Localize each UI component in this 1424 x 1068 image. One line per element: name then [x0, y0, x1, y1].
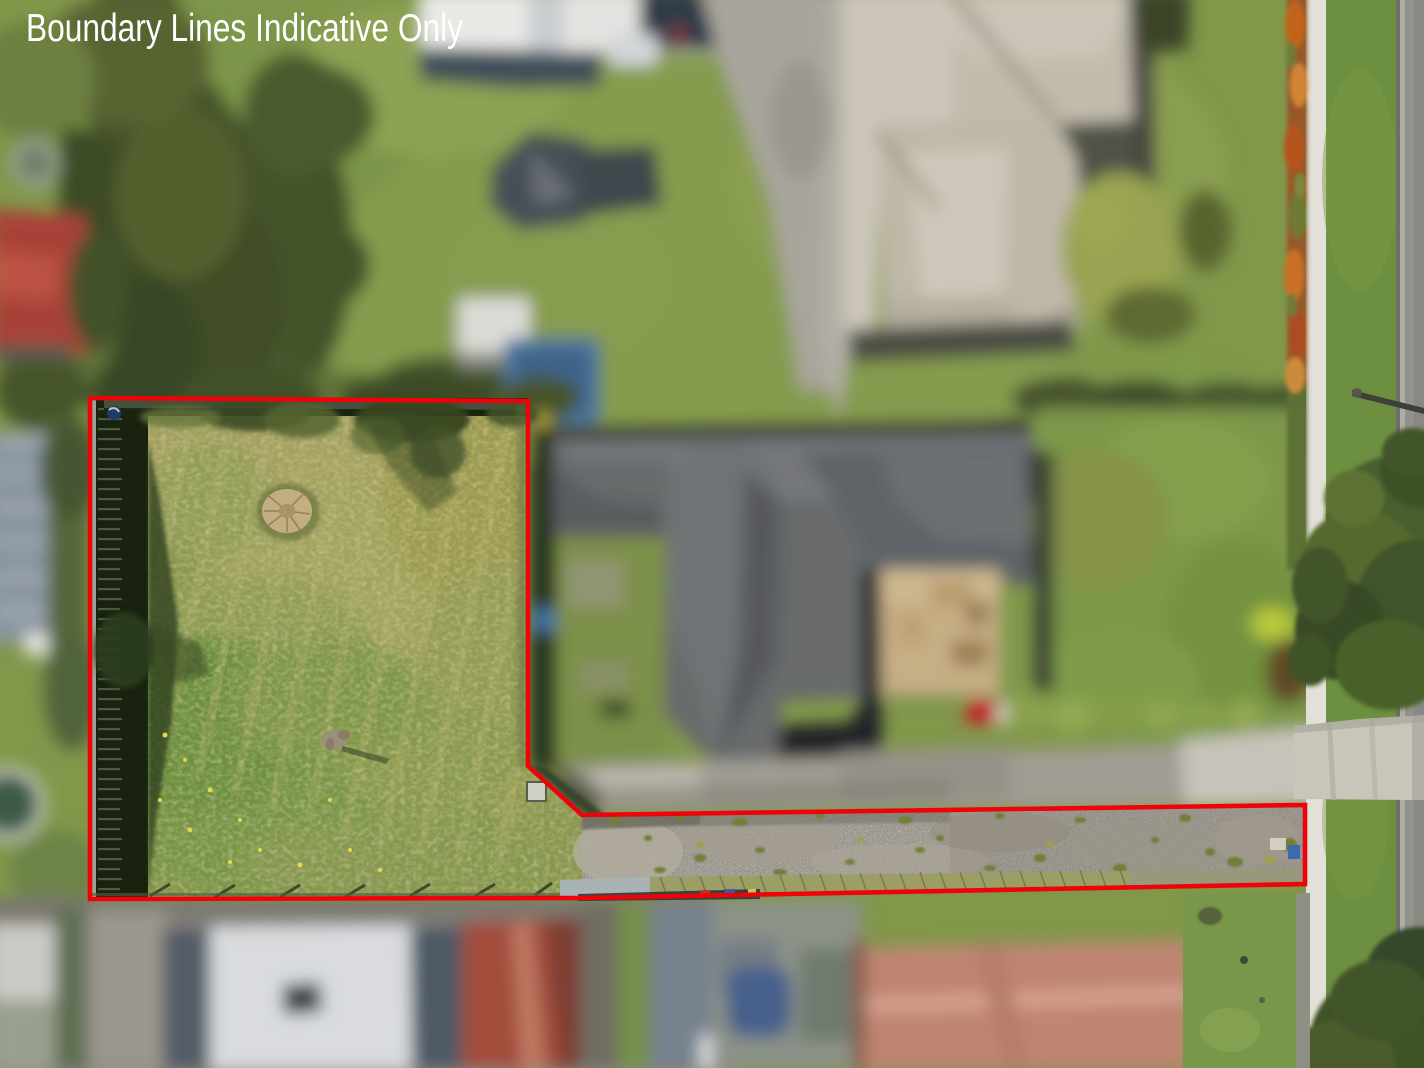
svg-text:Boundary Lines Indicative Only: Boundary Lines Indicative Only [26, 7, 464, 50]
